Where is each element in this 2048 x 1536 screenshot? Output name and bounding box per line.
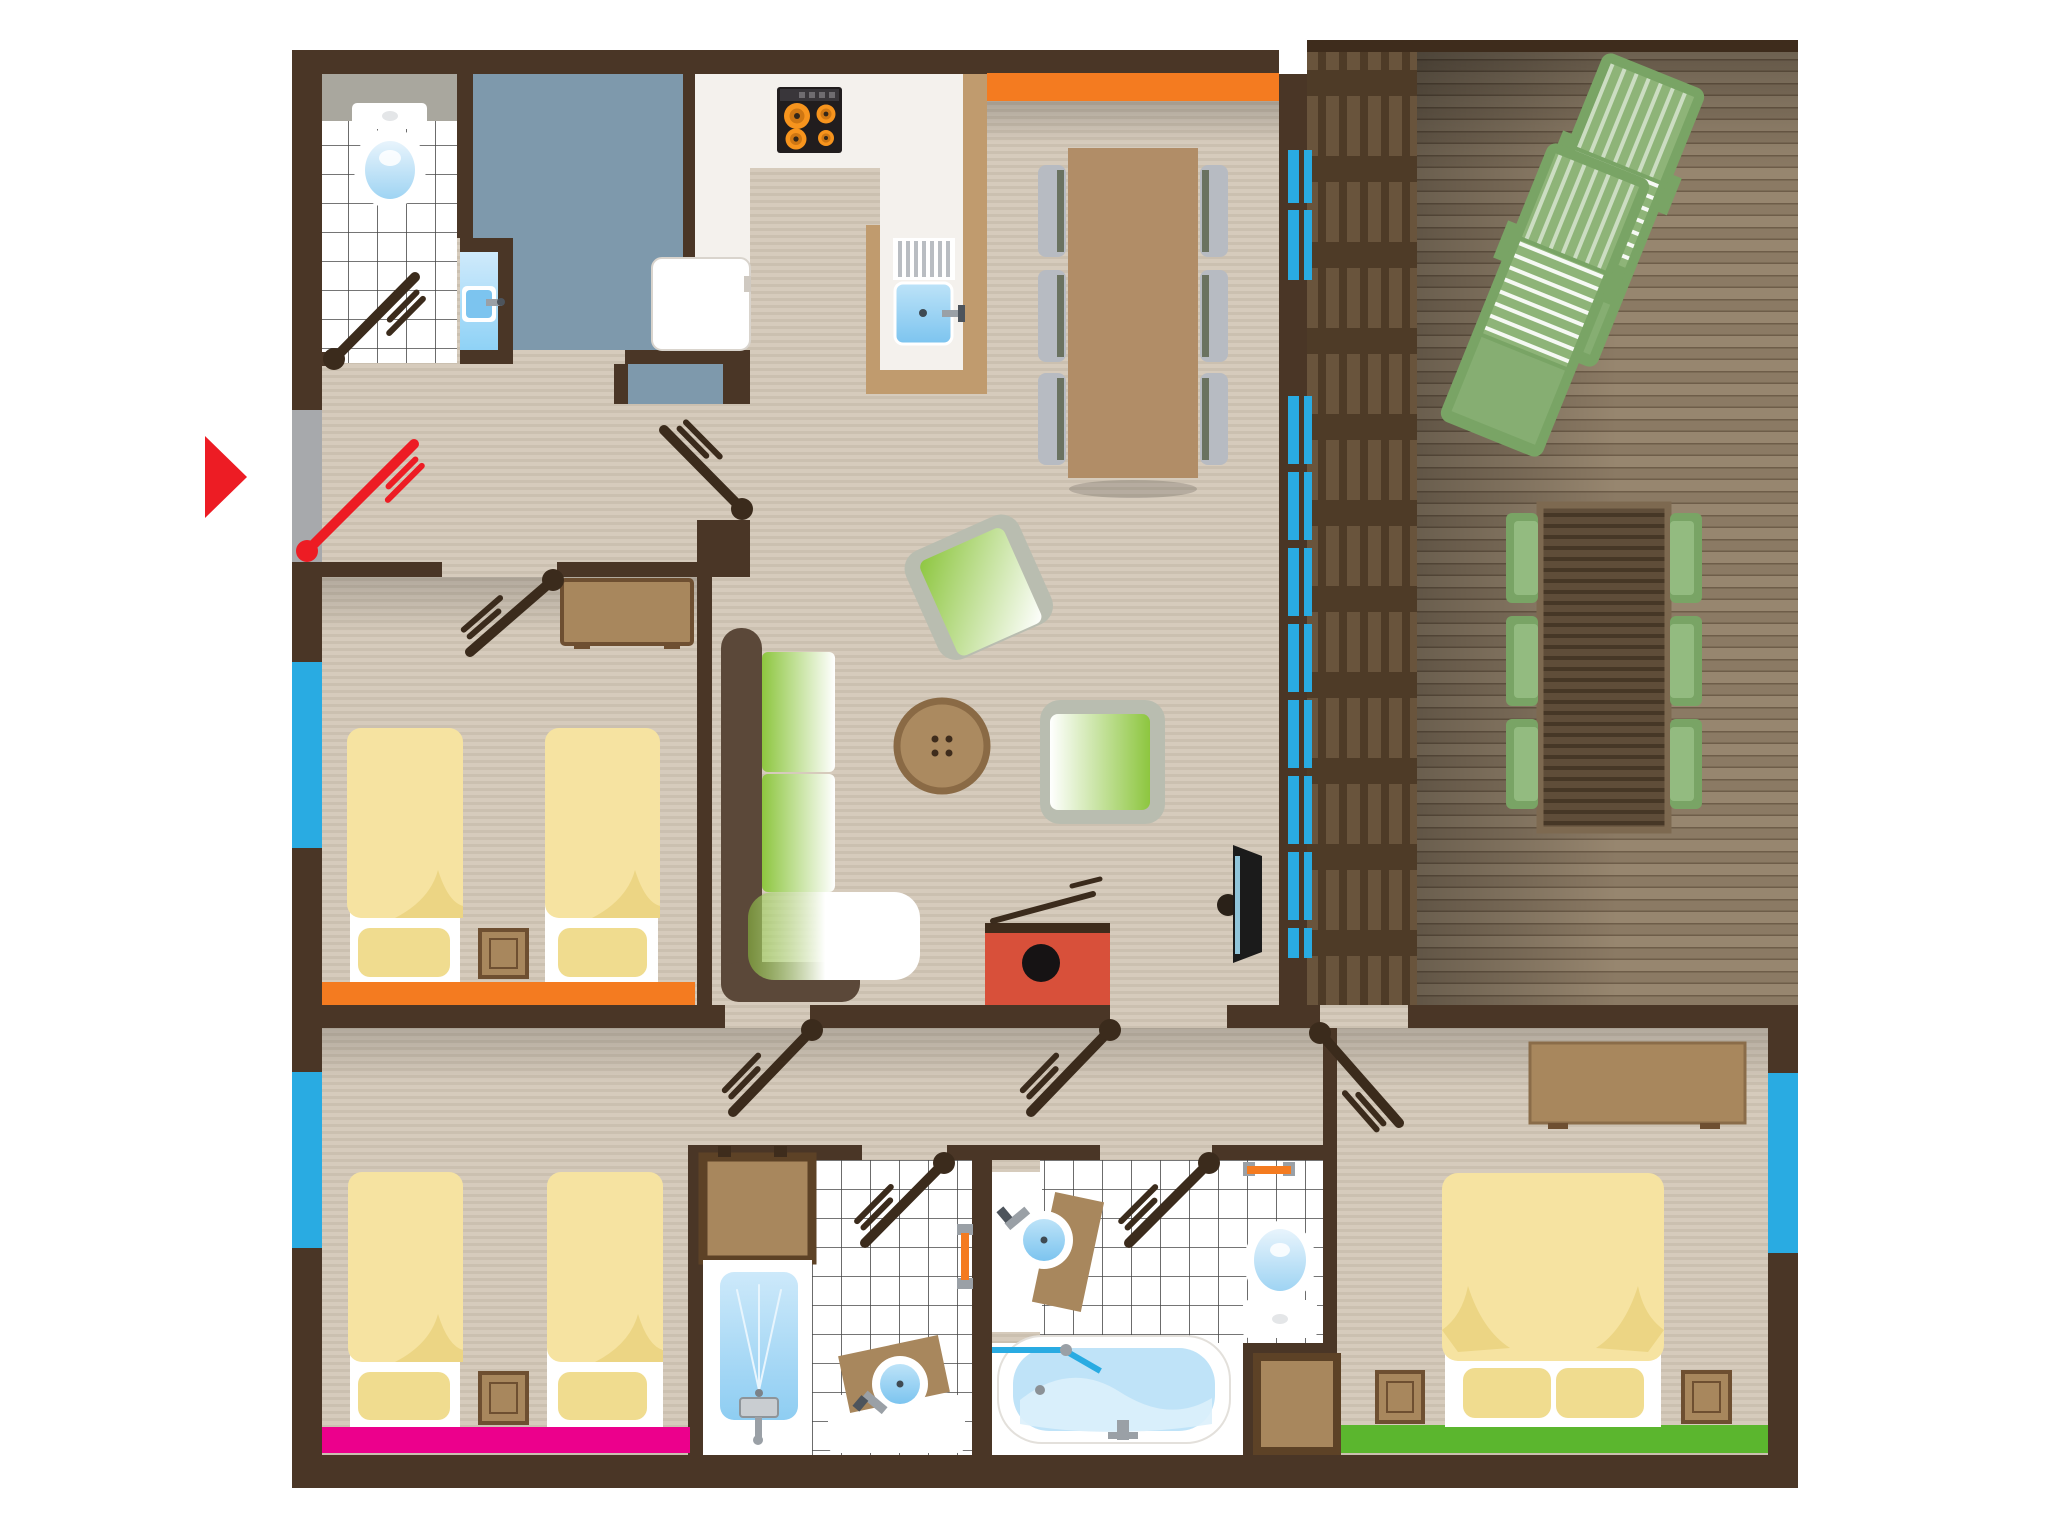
burner-tr-dot (824, 112, 829, 117)
wall-vestibule-right (723, 364, 750, 404)
dining-chair-r3-bar (1202, 378, 1209, 460)
window-pane-2-a (1288, 210, 1299, 280)
wc-toilet-shine (379, 150, 401, 166)
coffee-table-dot1 (932, 736, 939, 743)
bedroom1-nightstand (480, 930, 527, 977)
bath-vanity-drain (1041, 1237, 1048, 1244)
kitchen-sink-rib7 (946, 241, 950, 277)
bedroom3-dresser (1530, 1043, 1745, 1123)
living-room-door-hinge (731, 498, 753, 520)
wardrobe-handle1 (718, 1146, 731, 1157)
bedroom3-nightstand-right (1683, 1372, 1730, 1422)
bedroom1-desk-foot2 (664, 644, 680, 649)
window-pane-1-a (1288, 150, 1299, 203)
window-pane-10-b (1304, 928, 1312, 958)
window-pane-2-b (1304, 210, 1312, 280)
bedroom2-nightstand (480, 1373, 527, 1423)
wall-wc-niche-top (460, 238, 513, 252)
bed3-pillow-right (1556, 1368, 1644, 1418)
wall-bottom (292, 1455, 1798, 1488)
shower-drain (755, 1389, 763, 1397)
bed2a-pillow (358, 1372, 450, 1420)
hall-door-left-hinge (801, 1019, 823, 1041)
dining-chair-r2-bar (1202, 275, 1209, 357)
coffee-table (897, 701, 987, 791)
burner-bl-dot (793, 136, 798, 141)
plan-shapes (205, 40, 1798, 1488)
shower-head-bar (740, 1398, 778, 1417)
entry-door-hinge (296, 540, 318, 562)
window-right-bedroom3 (1768, 1073, 1798, 1253)
wall-top (292, 50, 1279, 74)
window-pane-3-b (1304, 396, 1312, 464)
sofa-cushion-1 (762, 652, 835, 772)
bath-toilet-button (1272, 1314, 1288, 1324)
window-left-bedroom1 (292, 662, 322, 848)
wood-stove-top-band (985, 923, 1110, 933)
accent-green-bedroom3 (1337, 1425, 1768, 1453)
terrace-chair-r2-pad (1670, 624, 1694, 698)
kitchen-counter-trim-right (963, 74, 987, 394)
terrace-chair-l3-pad (1514, 727, 1538, 801)
wall-pillar (697, 520, 750, 577)
storage-floor-main (473, 74, 683, 240)
accent-orange-bedroom1 (322, 982, 695, 1005)
wc-toilet-water (365, 141, 415, 199)
sofa-corner-cushion (748, 892, 920, 980)
window-pane-6-a (1288, 624, 1299, 692)
window-pane-1-b (1304, 150, 1312, 203)
window-pane-9-b (1304, 852, 1312, 920)
stove-knob3 (819, 92, 825, 98)
kitchen-sink-rib3 (914, 241, 918, 277)
bed1a-pillow (358, 928, 450, 977)
dining-table-shadow (1069, 480, 1197, 498)
wall-south-a (322, 1005, 725, 1028)
dining-chair-l3-bar (1057, 378, 1064, 460)
stove-knob4 (829, 92, 835, 98)
terrace-chair-r1-pad (1670, 521, 1694, 595)
armchair-right-seat (1050, 714, 1150, 810)
window-pane-7-a (1288, 700, 1299, 768)
shower-head-stem (755, 1417, 762, 1437)
bath-screen-hinge (1060, 1344, 1072, 1356)
accent-magenta-bedroom2 (322, 1427, 690, 1453)
bed2b-pillow (558, 1372, 647, 1420)
shower-head-dot (753, 1435, 763, 1445)
wc-door-hinge (323, 348, 345, 370)
window-pane-7-b (1304, 700, 1312, 768)
dining-table (1068, 148, 1198, 478)
wc-toilet-button (382, 111, 398, 121)
kitchen-sink-rib4 (922, 241, 926, 277)
kitchen-sink-rib6 (938, 241, 942, 277)
bedroom1-desk-foot1 (574, 644, 590, 649)
window-pane-6-b (1304, 624, 1312, 692)
terrace-chair-l1-pad (1514, 521, 1538, 595)
bedroom3-door-hinge (1309, 1022, 1331, 1044)
window-pane-4-b (1304, 472, 1312, 540)
shower-towel-bar (961, 1233, 969, 1280)
kitchen-counter-trim-inner (866, 225, 880, 370)
wall-south-d (1408, 1005, 1768, 1028)
terrace-chair-l2-pad (1514, 624, 1538, 698)
wall-bath-east (1323, 1028, 1337, 1355)
kitchen-sink-rib1 (898, 241, 902, 277)
trellis-screen (1307, 52, 1417, 1005)
bed3-pillow-left (1463, 1368, 1551, 1418)
window-pane-9-a (1288, 852, 1299, 920)
wall-vestibule-left (614, 364, 628, 404)
bath-toilet-shine (1270, 1243, 1290, 1257)
floor-plan (0, 0, 2048, 1536)
bathtub-faucet-cross (1108, 1432, 1138, 1439)
kitchen-sink-drain (919, 309, 927, 317)
shower-vanity-drain (897, 1381, 904, 1388)
wall-bedroom1-north-b (557, 562, 697, 577)
burner-br-dot (824, 136, 828, 140)
wall-bedroom1-east (697, 577, 712, 1005)
kitchen-sink-rib2 (906, 241, 910, 277)
bath-toilet-water (1254, 1229, 1306, 1291)
bath-screen-flat (992, 1347, 1064, 1353)
wall-storage-south (625, 350, 750, 364)
bathtub-drain (1035, 1385, 1045, 1395)
window-pane-8-a (1288, 776, 1299, 844)
window-pane-5-a (1288, 548, 1299, 616)
bedroom1-door-hinge (542, 569, 564, 591)
dining-chair-l2-bar (1057, 275, 1064, 357)
terrace-table (1540, 505, 1668, 830)
bedroom3-dresser-foot1 (1548, 1123, 1568, 1129)
window-left-bedroom2 (292, 1072, 322, 1248)
wall-wc-niche-bottom (460, 350, 513, 364)
sofa-cushion-2 (762, 774, 835, 892)
tv-screen-edge (1235, 856, 1240, 954)
burner-tl-dot (794, 113, 800, 119)
stove-knob1 (799, 92, 805, 98)
bedroom2-shade (322, 1028, 1323, 1083)
storage-vestibule (628, 364, 723, 404)
wardrobe (703, 1157, 812, 1260)
kitchen-sink-rib5 (930, 241, 934, 277)
bath-towel-bar (1247, 1166, 1291, 1174)
window-pane-8-b (1304, 776, 1312, 844)
dining-chair-r1-bar (1202, 170, 1209, 252)
window-pane-5-b (1304, 548, 1312, 616)
bed1b-pillow (558, 928, 647, 977)
kitchen-counter-trim-bottom (866, 370, 987, 394)
coffee-table-dot2 (946, 736, 953, 743)
wall-bath-north-a (992, 1145, 1100, 1160)
shower-room-door-hinge (933, 1152, 955, 1174)
window-pane-3-a (1288, 396, 1299, 464)
bedroom1-desk (562, 580, 692, 644)
terrace-chair-r3-pad (1670, 727, 1694, 801)
wood-stove-plate (1022, 944, 1060, 982)
bedroom3-cabinet (1257, 1357, 1337, 1451)
terrace-deck-edge (1307, 40, 1798, 52)
fridge (652, 258, 750, 350)
bedroom3-dresser-foot2 (1700, 1123, 1720, 1129)
window-pane-10-a (1288, 928, 1299, 958)
stove-knob2 (809, 92, 815, 98)
entry-arrow (205, 436, 247, 518)
wc-sink-faucet-dot (497, 298, 505, 306)
wall-shower-bath (972, 1145, 992, 1455)
kitchen-sink-faucet-cap (958, 305, 965, 322)
wall-shower-north-a (812, 1145, 862, 1160)
coffee-table-dot3 (932, 750, 939, 757)
bedroom3-nightstand-left (1377, 1372, 1423, 1422)
window-pane-4-a (1288, 472, 1299, 540)
wall-bedroom1-north-a (322, 562, 442, 577)
dining-chair-l1-bar (1057, 170, 1064, 252)
coffee-table-dot4 (946, 750, 953, 757)
fridge-handle (744, 276, 751, 292)
dining-wall-shade (987, 101, 1279, 143)
hall-door-right-hinge (1099, 1019, 1121, 1041)
wall-bath-north-b (1212, 1145, 1323, 1160)
accent-orange-dining-wall (987, 73, 1279, 101)
wardrobe-handle2 (774, 1146, 787, 1157)
floor-plan-page (0, 0, 2048, 1536)
bathroom-door-hinge (1198, 1152, 1220, 1174)
wall-south-b (810, 1005, 1110, 1028)
wall-south-c (1227, 1005, 1320, 1028)
wall-wc-east (457, 74, 473, 238)
